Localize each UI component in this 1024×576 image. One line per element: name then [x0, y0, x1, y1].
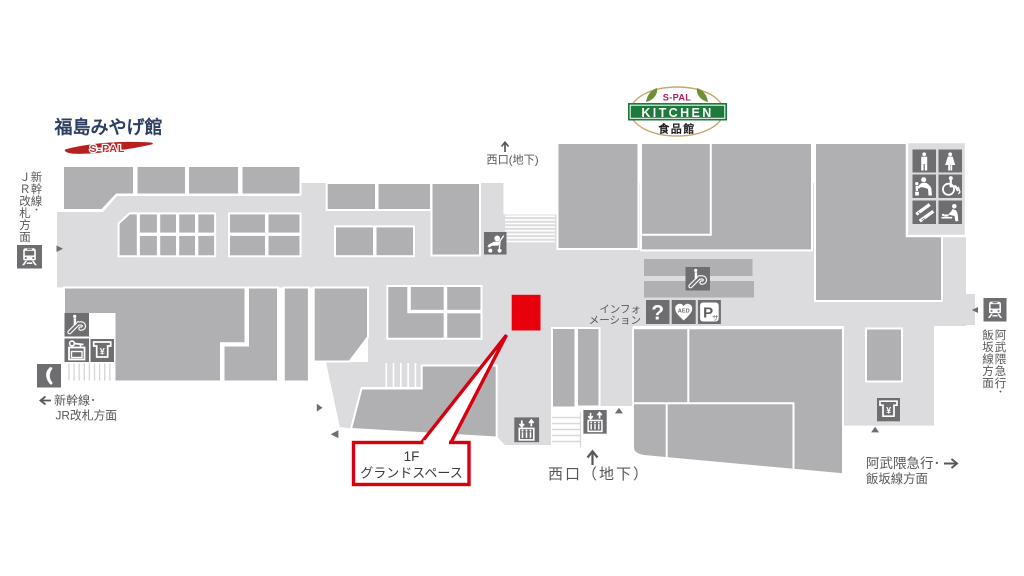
svg-text:¥: ¥ — [886, 406, 891, 416]
svg-text:･: ･ — [34, 205, 40, 217]
svg-text:飯: 飯 — [982, 328, 994, 342]
svg-text:¥: ¥ — [100, 347, 105, 357]
svg-text:JR改札方面: JR改札方面 — [56, 409, 118, 423]
svg-text:Ｒ: Ｒ — [19, 184, 31, 196]
svg-text:サ: サ — [712, 314, 719, 322]
svg-text:西口（地下）: 西口（地下） — [548, 466, 650, 483]
svg-text:面: 面 — [19, 232, 31, 244]
svg-text:隈: 隈 — [995, 353, 1007, 366]
svg-text:S-PAL: S-PAL — [663, 93, 691, 103]
svg-text:急: 急 — [995, 364, 1007, 378]
svg-text:食品館: 食品館 — [658, 122, 696, 136]
svg-text:坂: 坂 — [982, 341, 994, 354]
svg-text:1F: 1F — [404, 449, 420, 464]
svg-text:方: 方 — [982, 364, 994, 378]
svg-text:西口(地下): 西口(地下) — [486, 154, 538, 167]
svg-text:KITCHEN: KITCHEN — [641, 106, 713, 120]
svg-text:S-PAL: S-PAL — [90, 143, 126, 155]
svg-text:?: ? — [651, 302, 664, 325]
svg-text:方: 方 — [19, 218, 31, 232]
svg-text:札: 札 — [19, 207, 31, 220]
svg-text:幹: 幹 — [31, 182, 43, 196]
svg-text:新: 新 — [31, 170, 43, 184]
svg-text:阿武隈急行･: 阿武隈急行･ — [866, 456, 940, 471]
svg-text:線: 線 — [982, 352, 994, 366]
svg-text:改: 改 — [19, 194, 31, 208]
svg-text:グランドスペース: グランドスペース — [360, 466, 462, 481]
svg-text:阿: 阿 — [995, 329, 1007, 342]
svg-text:･: ･ — [998, 387, 1004, 399]
svg-text:新幹線･: 新幹線･ — [54, 393, 96, 408]
svg-text:面: 面 — [982, 378, 994, 390]
svg-text:福島みやげ館: 福島みやげ館 — [54, 117, 163, 138]
svg-text:飯坂線方面: 飯坂線方面 — [866, 471, 928, 486]
svg-text:メーション: メーション — [589, 315, 641, 327]
svg-text:Ｊ: Ｊ — [19, 172, 31, 184]
svg-text:武: 武 — [995, 341, 1007, 354]
svg-text:AED: AED — [678, 309, 690, 315]
